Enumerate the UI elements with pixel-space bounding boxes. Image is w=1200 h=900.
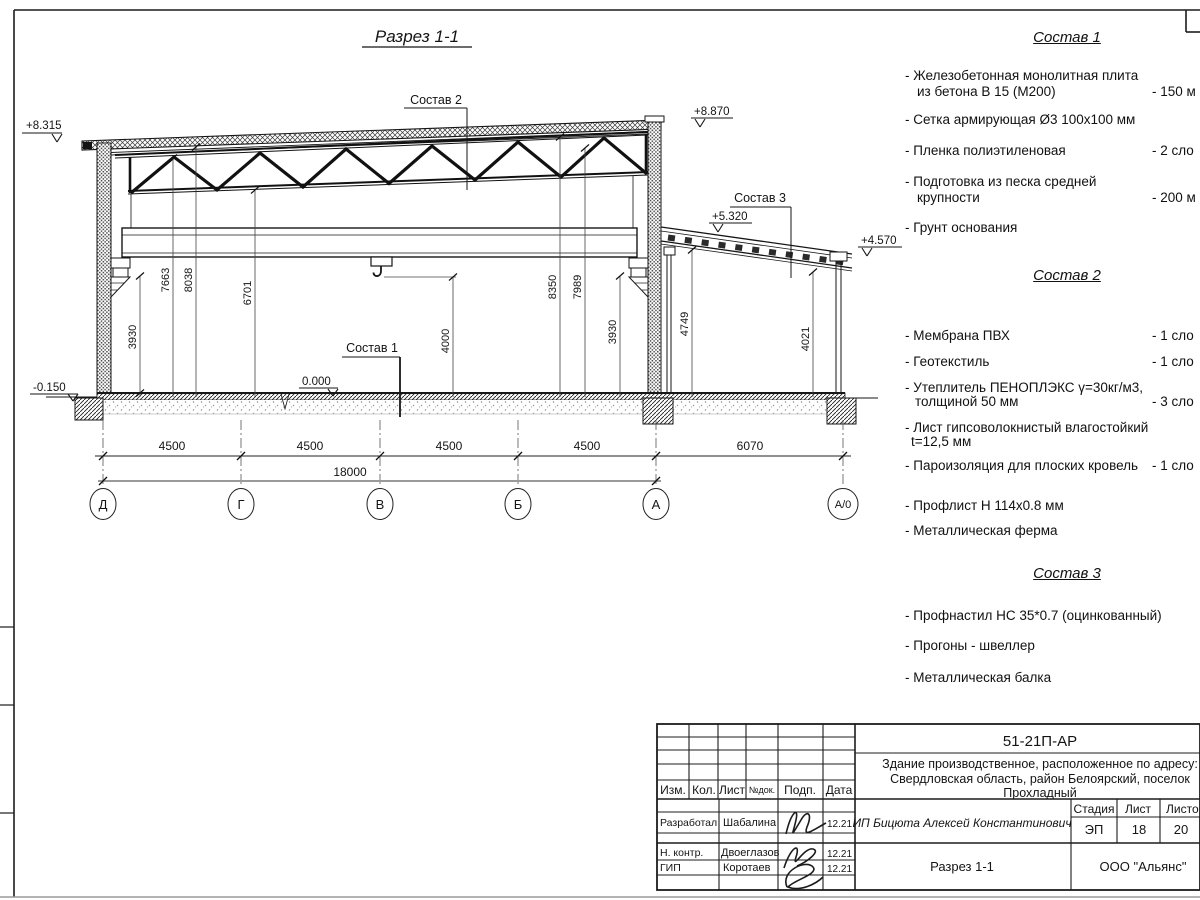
tb-role: Н. контр. [660, 847, 703, 859]
material-item: - Пароизоляция для плоских кровель [905, 458, 1138, 473]
dim-label: 7989 [572, 275, 584, 299]
stage-label: Стадия [1074, 802, 1115, 816]
material-item: - Утеплитель ПЕНОПЛЭКС γ=30кг/м3, [905, 380, 1143, 395]
material-item: - Лист гипсоволокнистый влагостойкий [905, 420, 1148, 435]
material-item: - Прогоны - швеллер [905, 638, 1035, 653]
material-item: из бетона В 15 (М200) [917, 84, 1056, 99]
axis-label: А/0 [835, 499, 852, 511]
project-description: Здание производственное, расположенное п… [882, 757, 1198, 771]
dim-label-overall: 18000 [333, 465, 367, 479]
tb-col-podp: Подп. [784, 783, 816, 797]
dim-label: 4500 [436, 439, 463, 453]
axis-bubbles: Д Г В Б А А/0 [90, 489, 858, 520]
dim-label: 6701 [242, 281, 254, 305]
signature [786, 812, 826, 834]
right-wall [648, 122, 661, 398]
elevation-roof-left: +8.315 [22, 120, 62, 142]
material-value: - 1 сло [1152, 354, 1194, 369]
material-item: - Железобетонная монолитная плита [905, 68, 1138, 83]
material-item: - Металлическая ферма [905, 523, 1058, 538]
elevation-label: +5.320 [712, 211, 748, 223]
dim-7989: 7989 [572, 145, 589, 398]
sheet-title: Разрез 1-1 [930, 859, 994, 874]
elevation-label: -0.150 [33, 382, 66, 394]
dim-label: 4500 [297, 439, 324, 453]
dim-8038: 8038 [183, 144, 200, 398]
dim-label: 7663 [160, 268, 172, 292]
tb-col-list: Лист [719, 783, 746, 797]
dim-label: 8350 [547, 275, 559, 299]
axis-label: Г [237, 497, 244, 512]
material-value: - 2 сло [1152, 143, 1194, 158]
left-wall [97, 143, 111, 398]
dim-3930-right: 3930 [607, 273, 624, 398]
annex-left-column-cap [664, 247, 675, 255]
materials-list-title: Состав 2 [905, 267, 1200, 284]
material-value: - 1 сло [1152, 328, 1194, 343]
axis-label: Д [99, 497, 108, 512]
sheets-value: 20 [1174, 822, 1188, 837]
material-item: - Геотекстиль [905, 354, 989, 369]
elevation-label: +8.870 [694, 106, 730, 118]
material-item: - Грунт основания [905, 220, 1017, 235]
dim-7663: 7663 [160, 155, 177, 398]
dim-label: 4000 [440, 329, 452, 353]
floor-slab [46, 393, 878, 424]
view-title-label: Разрез 1-1 [375, 27, 459, 46]
dim-6701: 6701 [242, 187, 259, 398]
signature [786, 864, 823, 888]
company-name: ООО "Альянс" [1100, 859, 1187, 874]
material-item: - Пленка полиэтиленовая [905, 143, 1066, 158]
drawing-sheet: Разрез 1-1 [0, 0, 1200, 900]
crane-trolley [371, 257, 392, 266]
axis-label: Б [514, 497, 523, 512]
right-corbel [629, 258, 648, 297]
material-value: - 150 м [1152, 84, 1196, 99]
leader-sostav3: Состав 3 [730, 191, 791, 278]
foundation-right [827, 398, 856, 424]
vertical-dimensions: 3930 7663 8038 6701 4000 8350 [127, 134, 817, 398]
dim-label: 3930 [127, 325, 139, 349]
roof-end-cap [83, 142, 92, 149]
dim-4749: 4749 [679, 247, 696, 398]
foundation-left [75, 398, 103, 420]
tb-col-ndok: №док. [749, 785, 775, 795]
crane-hook-icon [374, 266, 382, 276]
tb-role: Разработал [660, 817, 717, 829]
axis-label: В [376, 497, 385, 512]
materials-list-title: Состав 3 [905, 565, 1200, 582]
elevation-label: 0.000 [302, 376, 331, 388]
tb-date: 12.21 [827, 819, 852, 830]
dim-label: 4500 [159, 439, 186, 453]
dim-label: 3930 [607, 320, 619, 344]
material-item: толщиной 50 мм [915, 394, 1018, 409]
tb-role: ГИП [660, 862, 681, 874]
material-item: - Профнастил НС 35*0.7 (оцинкованный) [905, 608, 1162, 623]
tb-date: 12.21 [827, 849, 852, 860]
bottom-dimensions: 4500 4500 4500 4500 6070 18000 [95, 420, 851, 487]
elevation-ground: -0.150 [30, 382, 78, 401]
sheets-label: Листо [1166, 802, 1199, 816]
title-block: 51-21П-АР Здание производственное, распо… [657, 724, 1200, 890]
sheet-label: Лист [1125, 802, 1152, 816]
view-title: Разрез 1-1 [362, 27, 472, 47]
sheet-value: 18 [1132, 822, 1146, 837]
material-item: крупности [917, 190, 980, 205]
material-item: t=12,5 мм [911, 434, 971, 449]
axis-label: А [652, 497, 661, 512]
sand-layer [99, 400, 845, 414]
elevation-label: +8.315 [26, 120, 62, 132]
material-value: - 1 сло [1152, 458, 1194, 473]
project-description: Свердловская область, район Белоярский, … [890, 772, 1190, 786]
elevation-label: +4.570 [861, 235, 897, 247]
leader-sostav1-label: Состав 1 [346, 341, 398, 355]
dim-label: 6070 [737, 439, 764, 453]
main-roof [82, 120, 661, 155]
dim-label: 4749 [679, 312, 691, 336]
material-item: - Подготовка из песка средней [905, 174, 1096, 189]
section-drawing: Разрез 1-1 [0, 0, 1200, 900]
project-description: Прохладный [1003, 786, 1076, 800]
leader-sostav3-label: Состав 3 [734, 191, 786, 205]
dim-4021: 4021 [800, 269, 817, 398]
elevation-annex-low: +4.570 [858, 235, 902, 256]
material-item: - Мембрана ПВХ [905, 328, 1010, 343]
materials-list-title: Состав 1 [905, 29, 1200, 46]
material-item: - Металлическая балка [905, 670, 1051, 685]
tb-name: Шабалина [723, 817, 777, 829]
tb-col-data: Дата [826, 783, 853, 797]
material-item: - Профлист Н 114х0.8 мм [905, 498, 1064, 513]
elevation-annex-high: +5.320 [709, 211, 752, 232]
elevation-wall-right: +8.870 [691, 106, 733, 127]
left-corbel [111, 258, 130, 297]
right-wall-cap [645, 116, 664, 122]
tb-col-izm: Изм. [660, 783, 686, 797]
dim-label: 8038 [183, 268, 195, 292]
client-name: ИП Бицюта Алексей Константинович [852, 816, 1071, 830]
dim-4000: 4000 [384, 274, 457, 398]
dim-3930-left: 3930 [127, 273, 144, 398]
material-value: - 3 сло [1152, 394, 1194, 409]
material-item: - Сетка армирующая Ø3 100х100 мм [905, 112, 1135, 127]
tb-date: 12.21 [827, 864, 852, 875]
foundation-mid [643, 398, 673, 424]
material-value: - 200 м [1152, 190, 1196, 205]
tb-name: Коротаев [723, 862, 771, 874]
stage-value: ЭП [1085, 822, 1104, 837]
dim-label: 4500 [574, 439, 601, 453]
tb-name: Двоеглазов [721, 847, 780, 859]
leader-sostav2-label: Состав 2 [410, 93, 462, 107]
dim-label: 4021 [800, 327, 812, 351]
tb-col-kol: Кол. [692, 783, 716, 797]
annex-right-wall-cap [830, 252, 847, 261]
document-code: 51-21П-АР [1003, 733, 1077, 750]
